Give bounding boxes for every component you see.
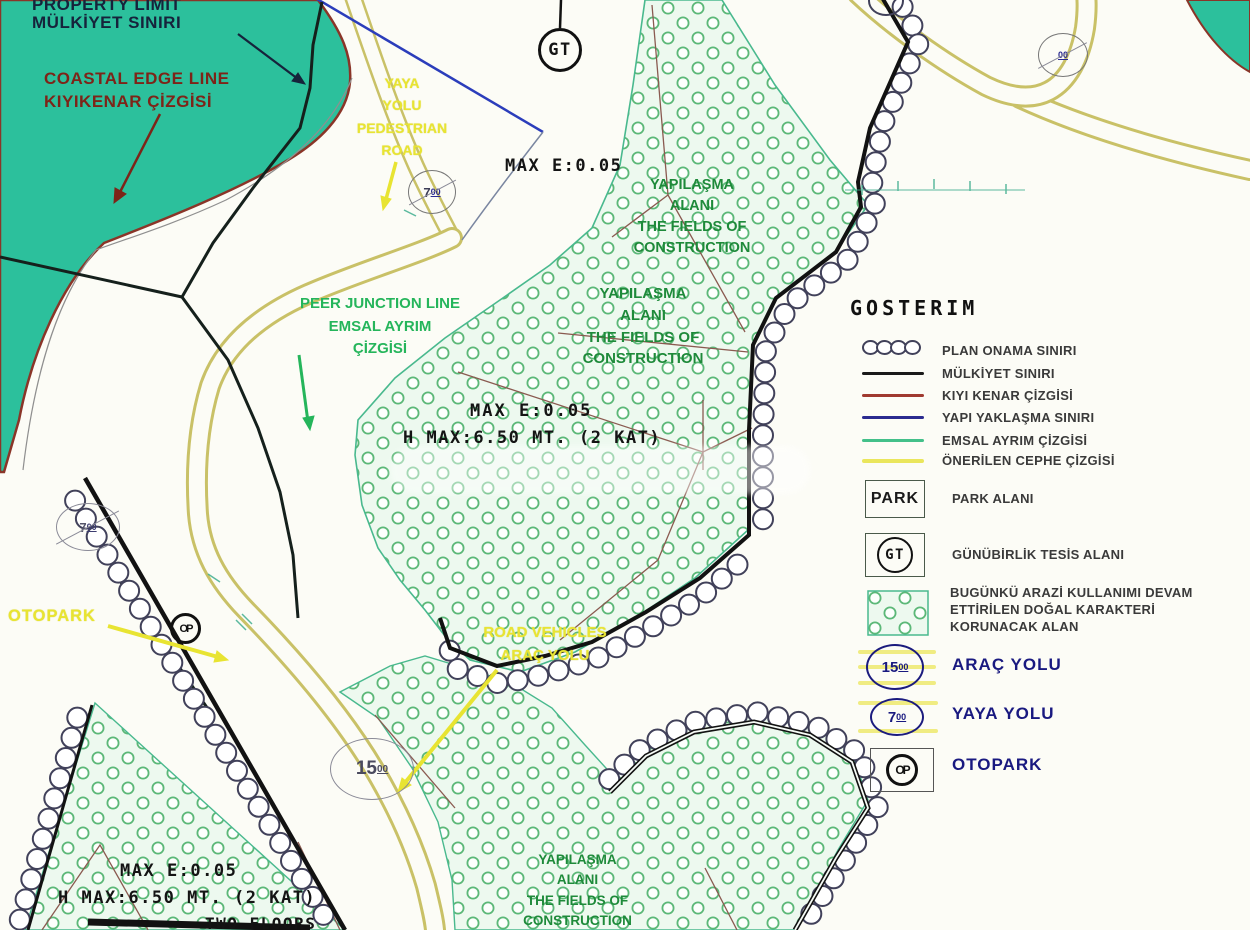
gt-facility-symbol: GT bbox=[538, 28, 582, 72]
coastal-edge-label: COASTAL EDGE LINE KIYIKENAR ÇİZGİSİ bbox=[44, 68, 229, 114]
pedestrian-road-width-symbol-left: 7 00 bbox=[56, 503, 120, 551]
h-max-bottom-label: H MAX:6.50 MT. (2 KAT) bbox=[58, 890, 316, 908]
property-limit-label: PROPERTY LIMIT MÜLKİYET SINIRI bbox=[32, 0, 181, 32]
legend-property-line: MÜLKİYET SINIRI bbox=[862, 366, 1055, 381]
pedestrian-road-arrow bbox=[381, 162, 396, 210]
yellow-line-icon bbox=[862, 459, 924, 463]
two-floors-label: TWO FLOORS bbox=[205, 916, 316, 930]
gt-box-icon: GT bbox=[865, 533, 925, 577]
plan-approval-circles-icon bbox=[862, 340, 938, 360]
max-e-top-label: MAX E:0.05 bbox=[505, 158, 622, 176]
otopark-label: OTOPARK bbox=[8, 608, 96, 625]
max-e-bottom-label: MAX E:0.05 bbox=[120, 863, 237, 881]
natural-area-pattern-icon bbox=[867, 590, 929, 636]
construction-area-1-label: YAPILAŞMA ALANI THE FIELDS OF CONSTRUCTI… bbox=[612, 175, 772, 259]
legend-yaya-yolu-label: YAYA YOLU bbox=[952, 705, 1055, 723]
peer-junction-arrow bbox=[299, 355, 314, 430]
blue-line-icon bbox=[862, 416, 924, 419]
legend-arac-yolu-label: ARAÇ YOLU bbox=[952, 656, 1062, 674]
legend-title: GOSTERIM bbox=[850, 298, 978, 319]
otopark-symbol: OP bbox=[170, 613, 201, 644]
gray-line bbox=[462, 132, 543, 240]
legend-otopark-label: OTOPARK bbox=[952, 756, 1042, 774]
vehicle-road-width-symbol: 15 00 bbox=[330, 738, 414, 800]
h-max-mid-label: H MAX:6.50 MT. (2 KAT) bbox=[403, 430, 661, 448]
legend-emsal-line: EMSAL AYRIM ÇİZGİSİ bbox=[862, 433, 1087, 448]
construction-area-2-label: YAPILAŞMA ALANI THE FIELDS OF CONSTRUCTI… bbox=[558, 283, 728, 370]
pedestrian-road-label: YAYA YOLU PEDESTRIAN ROAD bbox=[352, 72, 452, 162]
max-e-mid-label: MAX E:0.05 bbox=[470, 403, 592, 421]
red-line-icon bbox=[862, 394, 924, 397]
road-width-symbol-topright: 00 bbox=[1038, 33, 1088, 77]
legend-park-label: PARK ALANI bbox=[952, 492, 1034, 506]
legend-approach-line: YAPI YAKLAŞMA SINIRI bbox=[862, 410, 1094, 425]
zoning-plan-map: PROPERTY LIMIT MÜLKİYET SINIRI COASTAL E… bbox=[0, 0, 1250, 930]
sea-corner bbox=[1187, 0, 1250, 72]
legend-gt-label: GÜNÜBİRLİK TESİS ALANI bbox=[952, 548, 1124, 562]
legend-natural-label: BUGÜNKÜ ARAZİ KULLANIMI DEVAM ETTİRİLEN … bbox=[950, 585, 1193, 636]
legend-coastal-line: KIYI KENAR ÇİZGİSİ bbox=[862, 388, 1073, 403]
black-line-icon bbox=[862, 372, 924, 375]
otopark-box-icon: OP bbox=[870, 748, 934, 792]
peer-junction-label: PEER JUNCTION LINE EMSAL AYRIM ÇİZGİSİ bbox=[275, 293, 485, 361]
scan-watermark bbox=[390, 446, 810, 494]
legend-plan-approval: PLAN ONAMA SINIRI bbox=[862, 340, 1077, 360]
legend-facade-line: ÖNERİLEN CEPHE ÇİZGİSİ bbox=[862, 453, 1115, 468]
construction-area-3-label: YAPILAŞMA ALANI THE FIELDS OF CONSTRUCTI… bbox=[495, 850, 660, 930]
road-vehicles-label: ROAD VEHICLES ARAÇ YOLU bbox=[455, 622, 635, 667]
green-line-icon bbox=[862, 439, 924, 443]
park-box-icon: PARK bbox=[865, 480, 925, 518]
pedestrian-road-width-symbol: 7 00 bbox=[408, 170, 456, 214]
